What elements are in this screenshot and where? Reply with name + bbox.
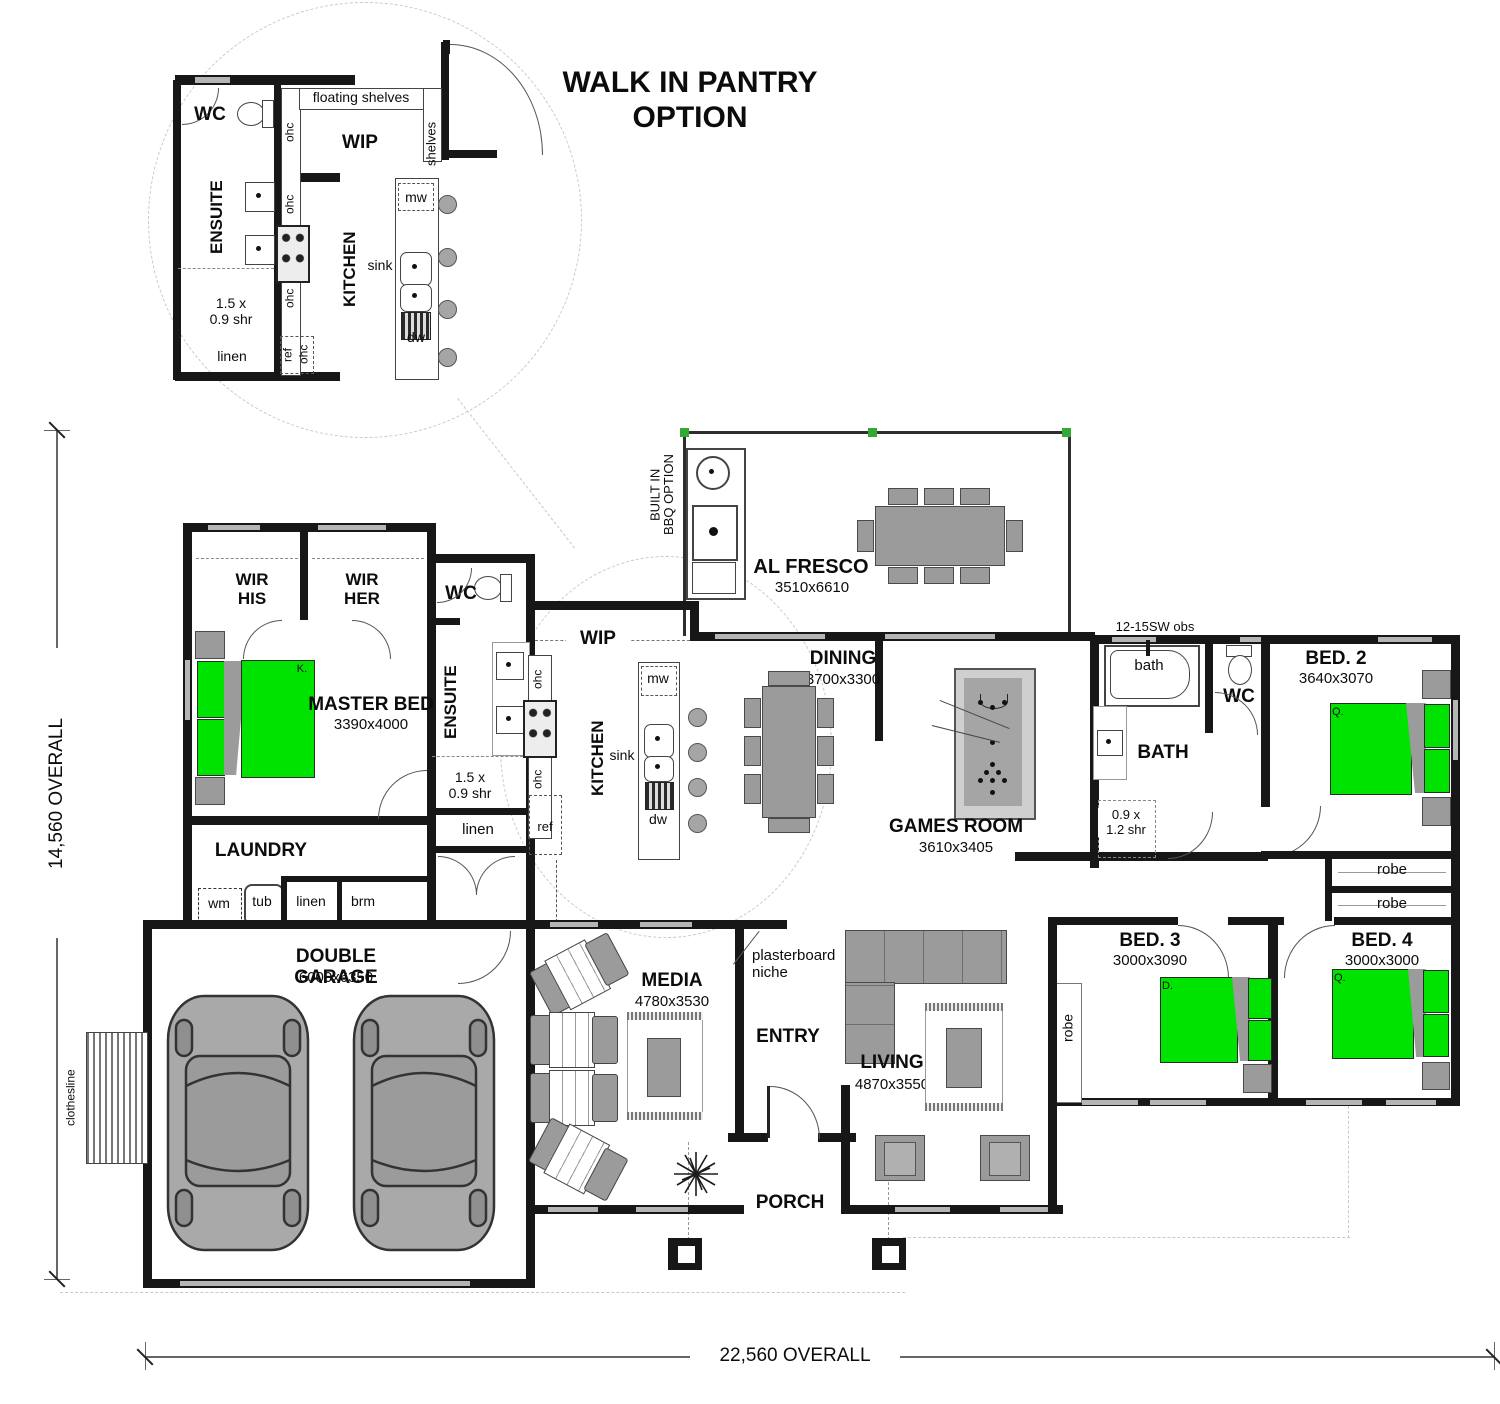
wall bbox=[427, 808, 535, 815]
window bbox=[1082, 1100, 1138, 1105]
master-bed-size: 3390x4000 bbox=[300, 717, 442, 734]
bed-pillow bbox=[1424, 749, 1450, 793]
window bbox=[1306, 1100, 1362, 1105]
wall bbox=[1325, 886, 1458, 893]
wir-shelf-dashed bbox=[312, 558, 424, 559]
inset-shelves-label: shelves bbox=[423, 104, 440, 184]
wall bbox=[183, 523, 192, 928]
bed-pillow bbox=[1423, 970, 1449, 1013]
door-arc bbox=[352, 620, 391, 659]
alfresco-label: AL FRESCO bbox=[750, 556, 872, 579]
pool-ball bbox=[1002, 700, 1007, 705]
kitchen-ohc-label: ohc bbox=[530, 762, 546, 796]
recliner-chair bbox=[527, 929, 630, 1018]
dining-label: DINING bbox=[798, 648, 888, 669]
sofa-l-top bbox=[845, 930, 1007, 984]
inset-ref-label: ref bbox=[281, 340, 295, 370]
porch-pillar-inner bbox=[882, 1246, 899, 1263]
window bbox=[185, 660, 190, 720]
alfresco-chair bbox=[960, 567, 990, 584]
bath-label: BATH bbox=[1130, 742, 1196, 763]
wall bbox=[281, 876, 427, 882]
pool-ball bbox=[978, 700, 983, 705]
bed4-size: 3000x3000 bbox=[1340, 953, 1424, 970]
basin-drain bbox=[506, 716, 511, 721]
alfresco-chair bbox=[924, 488, 954, 505]
stool-icon bbox=[688, 743, 707, 762]
dining-chair bbox=[768, 818, 810, 833]
inset-mw-label: mw bbox=[399, 190, 433, 206]
door-arc bbox=[378, 770, 427, 819]
stool-icon bbox=[688, 708, 707, 727]
slab-dashed-right bbox=[903, 1237, 1350, 1238]
window bbox=[640, 922, 692, 927]
pool-ball bbox=[978, 778, 983, 783]
wip-label: WIP bbox=[566, 628, 630, 649]
slab-dashed-bottom bbox=[60, 1292, 905, 1293]
wall bbox=[1261, 635, 1270, 807]
living-size: 4870x3550 bbox=[850, 1077, 934, 1094]
bed3-size: 3000x3090 bbox=[1108, 953, 1192, 970]
master-bed-tag: K. bbox=[292, 663, 312, 675]
clothesline-icon bbox=[86, 1032, 148, 1164]
bedside-table bbox=[195, 631, 225, 659]
garage-door bbox=[180, 1281, 470, 1286]
toilet-tank bbox=[500, 574, 512, 602]
tub-label: tub bbox=[246, 894, 278, 910]
sliding-door bbox=[885, 634, 995, 639]
ensuite-label: ENSUITE bbox=[438, 638, 464, 766]
toilet-icon bbox=[1228, 655, 1252, 685]
window bbox=[208, 525, 260, 530]
overall-height-label: 14,560 OVERALL bbox=[42, 648, 72, 938]
pool-ball bbox=[996, 770, 1001, 775]
robe-label: robe bbox=[1362, 862, 1422, 879]
bed3-tag: D. bbox=[1162, 980, 1182, 992]
door-arc bbox=[243, 620, 282, 659]
door-arc bbox=[770, 1086, 820, 1139]
bed3-label: BED. 3 bbox=[1108, 930, 1192, 951]
dining-chair bbox=[744, 736, 761, 766]
alfresco-chair bbox=[1006, 520, 1023, 552]
dishwasher-icon bbox=[645, 782, 674, 810]
door-arc bbox=[450, 44, 543, 155]
sink-drain bbox=[655, 764, 660, 769]
armchair bbox=[875, 1135, 925, 1181]
sink-bowl bbox=[644, 724, 674, 758]
leader-dashed-line bbox=[457, 398, 575, 548]
basin-drain bbox=[256, 193, 261, 198]
wir-his-label: WIR HIS bbox=[218, 570, 286, 608]
wall bbox=[427, 846, 535, 853]
window bbox=[895, 1207, 950, 1212]
bedside-table bbox=[195, 777, 225, 805]
basin-drain bbox=[1106, 739, 1111, 744]
wall bbox=[427, 554, 535, 563]
door-arc bbox=[458, 931, 511, 984]
inset-ohc-label: ohc bbox=[282, 188, 298, 220]
wall bbox=[175, 75, 285, 85]
pool-ball bbox=[990, 778, 995, 783]
robe-label: robe bbox=[1362, 896, 1422, 913]
sliding-door bbox=[715, 634, 825, 639]
door-arc bbox=[1284, 925, 1335, 978]
wall bbox=[818, 1133, 856, 1142]
bedside-table bbox=[1243, 1064, 1272, 1093]
wall bbox=[430, 618, 460, 625]
clothesline-label: clothesline bbox=[62, 1052, 80, 1144]
sink-bowl bbox=[644, 756, 674, 782]
stool-icon bbox=[688, 814, 707, 833]
pool-ball bbox=[990, 705, 995, 710]
wall bbox=[1325, 851, 1332, 921]
window bbox=[318, 525, 386, 530]
porch-pillar-inner bbox=[678, 1246, 695, 1263]
bbq-shelf bbox=[692, 562, 736, 594]
bbq-knob bbox=[709, 527, 718, 536]
bed-pillow bbox=[1424, 704, 1450, 748]
inset-kitchen-label: KITCHEN bbox=[338, 226, 362, 312]
plant-icon bbox=[672, 1150, 720, 1198]
sink-drain bbox=[412, 293, 417, 298]
games-room-size: 3610x3405 bbox=[910, 840, 1002, 857]
inset-ohc-label: ohc bbox=[282, 282, 298, 314]
kitchen-dw-label: dw bbox=[641, 812, 675, 828]
sink-bowl bbox=[400, 252, 432, 286]
bed-pillow bbox=[1248, 978, 1272, 1019]
window bbox=[548, 1207, 598, 1212]
inset-linen-label: linen bbox=[202, 349, 262, 365]
kitchen-ref-label: ref bbox=[528, 820, 562, 835]
bedside-table bbox=[1422, 1062, 1450, 1090]
bed4-tag: Q. bbox=[1334, 972, 1354, 984]
cooktop-icon bbox=[523, 700, 557, 758]
window bbox=[195, 77, 230, 83]
bed2-tag: Q. bbox=[1332, 706, 1352, 718]
wall bbox=[1048, 917, 1178, 925]
pool-ball bbox=[984, 770, 989, 775]
window bbox=[550, 922, 598, 927]
alfresco-size: 3510x6610 bbox=[768, 580, 856, 597]
media-table bbox=[647, 1038, 681, 1097]
wall bbox=[1261, 851, 1458, 859]
bedside-table bbox=[1422, 670, 1451, 699]
inset-floating-shelves-label: floating shelves bbox=[300, 90, 422, 106]
dining-chair bbox=[817, 698, 834, 728]
dining-chair bbox=[817, 774, 834, 804]
door-arc bbox=[476, 856, 515, 895]
wall bbox=[1334, 917, 1458, 925]
living-label: LIVING bbox=[850, 1052, 934, 1073]
basin-drain bbox=[506, 662, 511, 667]
pool-ball bbox=[990, 790, 995, 795]
window bbox=[636, 1207, 688, 1212]
pool-ball bbox=[990, 762, 995, 767]
alfresco-edge bbox=[1068, 431, 1071, 636]
floor-plan: WALK IN PANTRY OPTION WC floating shelve… bbox=[0, 0, 1500, 1404]
inset-wip-label: WIP bbox=[330, 132, 390, 153]
inset-ohc-label: ohc bbox=[282, 116, 298, 148]
inset-ensuite-label: ENSUITE bbox=[205, 172, 229, 262]
bed-pillow bbox=[1423, 1014, 1449, 1057]
armchair bbox=[980, 1135, 1030, 1181]
door-leaf bbox=[443, 40, 450, 54]
wall bbox=[1015, 852, 1095, 861]
wall bbox=[735, 920, 744, 1142]
wall bbox=[300, 528, 308, 620]
recliner-chair bbox=[530, 1070, 618, 1124]
pool-ball bbox=[1002, 778, 1007, 783]
basin-drain bbox=[256, 246, 261, 251]
bed4-label: BED. 4 bbox=[1340, 930, 1424, 951]
stool-icon bbox=[438, 195, 457, 214]
wall bbox=[143, 920, 535, 929]
bed-pillow bbox=[1248, 1020, 1272, 1061]
bed-pillow bbox=[197, 661, 225, 718]
bed-pillow bbox=[197, 719, 225, 776]
alfresco-post bbox=[868, 428, 877, 437]
laundry-linen-label: linen bbox=[286, 894, 336, 910]
wall bbox=[441, 42, 449, 160]
recliner-chair bbox=[530, 1012, 618, 1066]
entry-label: ENTRY bbox=[750, 1026, 826, 1047]
window bbox=[1378, 637, 1432, 642]
sink-drain bbox=[655, 736, 660, 741]
games-room-label: GAMES ROOM bbox=[886, 816, 1026, 837]
ensuite-shower-label: 1.5 x 0.9 shr bbox=[430, 770, 510, 802]
alfresco-chair bbox=[924, 567, 954, 584]
inset-ohc-label: ohc bbox=[297, 338, 311, 370]
wall bbox=[1205, 641, 1213, 733]
brm-label: brm bbox=[340, 894, 386, 910]
porch-label: PORCH bbox=[748, 1192, 832, 1213]
sink-drain bbox=[412, 264, 417, 269]
bed2-label: BED. 2 bbox=[1294, 648, 1378, 669]
toilet-icon bbox=[237, 102, 265, 126]
shower-dashed bbox=[432, 756, 528, 757]
window bbox=[1453, 700, 1458, 760]
bath-tap bbox=[1146, 640, 1150, 656]
alfresco-post bbox=[1062, 428, 1071, 437]
alfresco-table bbox=[875, 506, 1005, 566]
wir-shelf-dashed bbox=[196, 558, 298, 559]
dining-chair bbox=[744, 698, 761, 728]
wall bbox=[1048, 920, 1057, 1212]
cooktop-icon bbox=[276, 225, 310, 283]
bath-shower-label: 0.9 x 1.2 shr bbox=[1098, 808, 1154, 837]
dining-chair bbox=[768, 671, 810, 686]
bedside-table bbox=[1422, 797, 1451, 826]
alfresco-chair bbox=[960, 488, 990, 505]
inset-dw-label: dw bbox=[399, 330, 433, 346]
alfresco-edge bbox=[683, 431, 1071, 434]
garage-cars bbox=[158, 988, 528, 1260]
window bbox=[1000, 1207, 1050, 1212]
wall bbox=[173, 80, 181, 380]
master-bed-label: MASTER BED bbox=[300, 694, 442, 715]
door-arc bbox=[438, 856, 477, 895]
sink-bowl bbox=[400, 284, 432, 312]
window bbox=[1386, 1100, 1436, 1105]
wall bbox=[841, 1085, 850, 1212]
alfresco-chair bbox=[857, 520, 874, 552]
bed3-robe-label: robe bbox=[1057, 995, 1079, 1061]
dining-chair bbox=[817, 736, 834, 766]
dining-chair bbox=[744, 774, 761, 804]
toilet-tank bbox=[262, 100, 274, 128]
slab-dashed-vert bbox=[1348, 1106, 1349, 1238]
stool-icon bbox=[438, 300, 457, 319]
bath-window-note: 12-15SW obs bbox=[1105, 620, 1205, 635]
shower-dashed bbox=[178, 268, 274, 269]
alfresco-chair bbox=[888, 567, 918, 584]
inset-sink-label: sink bbox=[360, 258, 400, 274]
bed2-size: 3640x3070 bbox=[1292, 671, 1380, 688]
wir-her-label: WIR HER bbox=[326, 570, 398, 608]
recliner-chair bbox=[527, 1115, 630, 1204]
window bbox=[1150, 1100, 1206, 1105]
stool-icon bbox=[438, 348, 457, 367]
door-arc bbox=[1270, 806, 1321, 857]
dining-table bbox=[762, 686, 816, 818]
media-label: MEDIA bbox=[632, 970, 712, 991]
ensuite-linen-label: linen bbox=[430, 822, 526, 839]
wall bbox=[285, 75, 355, 85]
page-title: WALK IN PANTRY OPTION bbox=[500, 66, 880, 135]
wall bbox=[728, 1133, 768, 1142]
wall bbox=[526, 601, 698, 610]
laundry-label: LAUNDRY bbox=[206, 840, 316, 861]
wall bbox=[735, 920, 787, 929]
kitchen-mw-label: mw bbox=[641, 671, 675, 687]
stool-icon bbox=[438, 248, 457, 267]
inset-shower-label: 1.5 x 0.9 shr bbox=[195, 296, 267, 328]
alfresco-post bbox=[680, 428, 689, 437]
media-size: 4780x3530 bbox=[630, 994, 714, 1011]
overall-width-label: 22,560 OVERALL bbox=[690, 1345, 900, 1366]
coffee-table bbox=[946, 1028, 982, 1088]
inset-wc-label: WC bbox=[186, 104, 234, 125]
kitchen-sink-label: sink bbox=[604, 748, 640, 764]
stool-icon bbox=[688, 778, 707, 797]
wm-label: wm bbox=[200, 896, 238, 912]
bbq-option-label: BUILT IN BBQ OPTION bbox=[645, 450, 679, 540]
bathtub-label: bath bbox=[1126, 658, 1172, 675]
garage-size: 6000x6350 bbox=[292, 970, 380, 987]
alfresco-chair bbox=[888, 488, 918, 505]
bbq-sink-drain bbox=[709, 469, 714, 474]
kitchen-ohc-label: ohc bbox=[530, 662, 546, 696]
hall-dashed bbox=[556, 860, 557, 922]
